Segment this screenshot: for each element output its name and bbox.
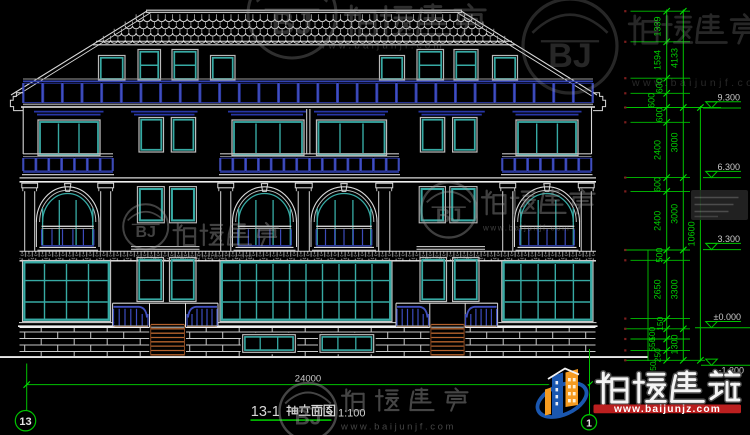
svg-text:600: 600 xyxy=(653,177,663,192)
svg-text:13-1: 13-1 xyxy=(251,404,280,420)
svg-text:www.baijunjf.com: www.baijunjf.com xyxy=(317,41,445,52)
svg-text:3.300: 3.300 xyxy=(717,234,740,244)
svg-text:1594: 1594 xyxy=(653,50,663,70)
svg-text:2400: 2400 xyxy=(653,211,663,231)
svg-text:1300: 1300 xyxy=(670,334,680,354)
svg-text:3300: 3300 xyxy=(670,279,680,299)
svg-text:6.300: 6.300 xyxy=(717,162,740,172)
svg-text:600: 600 xyxy=(655,107,665,122)
svg-text:3000: 3000 xyxy=(670,204,680,224)
svg-text:BJ: BJ xyxy=(295,406,322,429)
svg-text:www.baijunjz.com: www.baijunjz.com xyxy=(613,404,721,415)
svg-text:www.baijunjf.com: www.baijunjf.com xyxy=(631,77,750,89)
svg-text:10600: 10600 xyxy=(687,221,697,246)
svg-text:BJ: BJ xyxy=(135,224,155,241)
svg-text:13: 13 xyxy=(19,416,31,428)
svg-text:www.baijunjf.com: www.baijunjf.com xyxy=(482,224,570,233)
svg-text:www.baijunjf.com: www.baijunjf.com xyxy=(172,252,254,261)
svg-text:4133: 4133 xyxy=(670,48,680,68)
svg-text:1: 1 xyxy=(586,417,592,429)
svg-text:500: 500 xyxy=(655,248,665,263)
svg-text:BJ: BJ xyxy=(436,205,462,227)
svg-text:250: 250 xyxy=(653,348,663,362)
svg-text:BJ: BJ xyxy=(548,37,591,75)
svg-text:600: 600 xyxy=(647,93,657,108)
svg-text:2650: 2650 xyxy=(653,279,663,299)
svg-text:2400: 2400 xyxy=(653,140,663,160)
svg-text:9.300: 9.300 xyxy=(717,92,740,102)
svg-text:3000: 3000 xyxy=(670,132,680,152)
svg-text:±0.000: ±0.000 xyxy=(714,312,741,322)
svg-text:www.baijunjf.com: www.baijunjf.com xyxy=(340,422,456,433)
